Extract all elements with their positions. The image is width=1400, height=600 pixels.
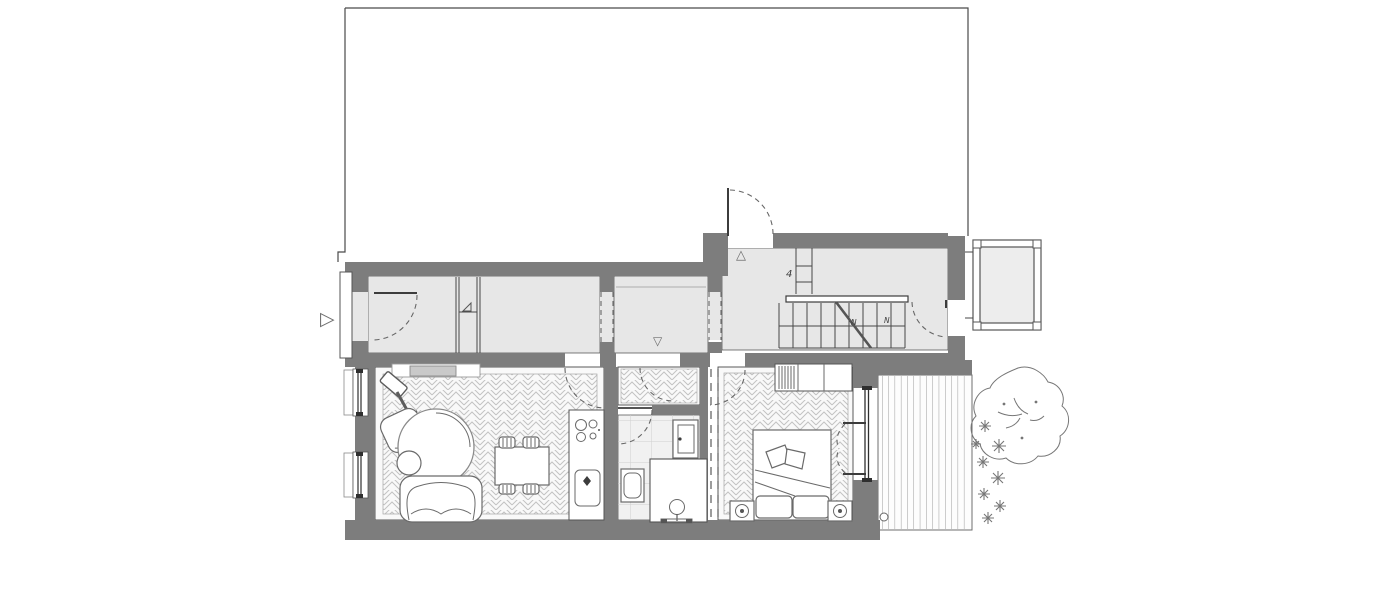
dining-chair — [523, 484, 539, 494]
tree — [971, 367, 1069, 464]
vestibule-upper-floor — [614, 276, 722, 353]
bed — [753, 430, 831, 520]
bedroom-sliding-partition — [711, 369, 718, 519]
hallway-floor — [352, 276, 614, 353]
entry-arrow-icon: ▷ — [320, 308, 335, 330]
wardrobe — [775, 364, 852, 391]
dining-chair — [499, 484, 515, 494]
radiator-niche — [392, 364, 480, 377]
threshold-down-icon: ▽ — [653, 334, 663, 348]
garden-door — [728, 188, 773, 248]
plot-boundary — [338, 8, 968, 262]
nightstand-left — [730, 501, 754, 521]
shrubs — [971, 420, 1006, 524]
kitchen-counter — [569, 410, 604, 520]
floor-plan-page: 4 N N — [0, 0, 1400, 600]
stair-mark-left: N — [851, 318, 857, 327]
dining-chair — [523, 437, 539, 448]
stair-mark-right: N — [884, 316, 890, 325]
nightstand-right — [828, 501, 852, 521]
toilet — [621, 469, 644, 502]
living-window-south — [344, 452, 368, 498]
washbasin — [673, 420, 698, 458]
bedroom-glass-wall — [860, 386, 873, 482]
deck-drain — [880, 513, 888, 521]
terrace-deck — [878, 375, 972, 530]
dining-chair — [499, 437, 515, 448]
foot-cushion — [756, 496, 792, 518]
shower — [650, 459, 707, 523]
stair-count-label: 4 — [786, 269, 792, 280]
window-box — [965, 240, 1041, 330]
foot-cushion — [793, 496, 829, 518]
inner-vestibule-floor — [618, 367, 700, 405]
sofa — [400, 476, 482, 522]
floor-plan-drawing: 4 N N — [0, 0, 1400, 600]
pouf — [397, 451, 421, 475]
living-window-north — [344, 369, 368, 416]
threshold-up-icon: △ — [736, 248, 746, 263]
